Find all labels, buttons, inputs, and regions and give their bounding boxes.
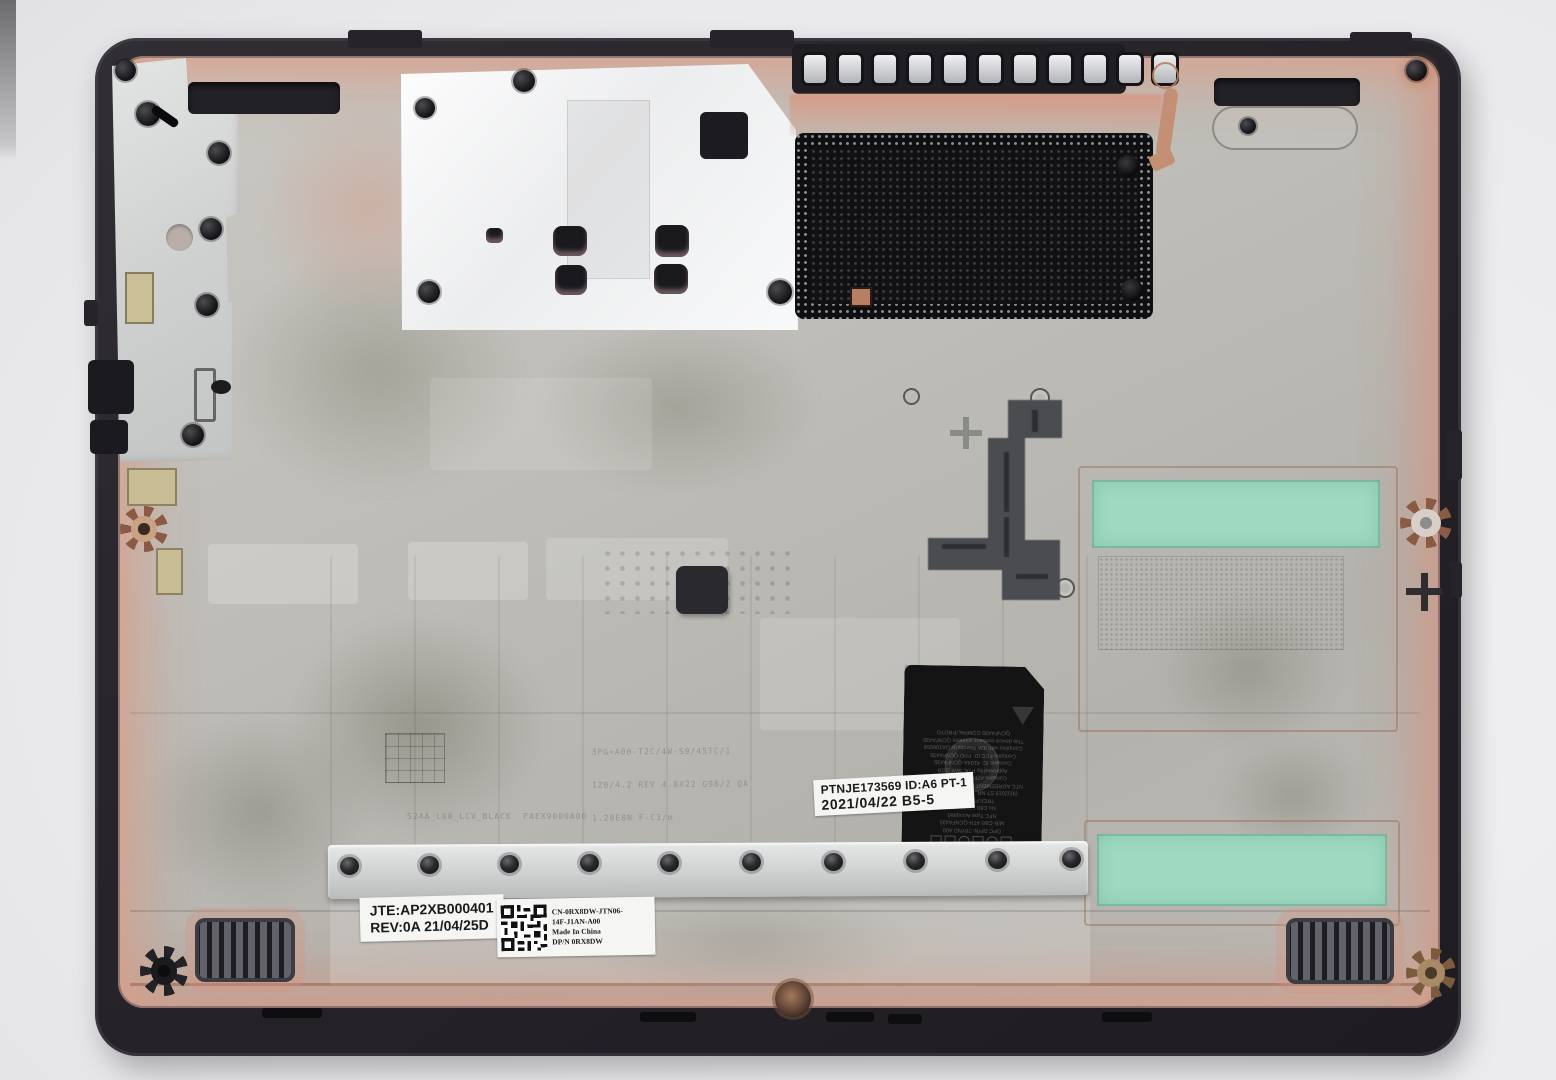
screw-ring <box>903 388 920 405</box>
vent-slot <box>1081 52 1109 86</box>
thermal-pad-bottom <box>1097 834 1387 906</box>
bracket-screw <box>182 424 204 446</box>
strip-screw <box>580 854 599 872</box>
gear-foot-bottom-right <box>1406 948 1456 998</box>
foil-cutout <box>655 225 689 257</box>
foil-screw <box>513 70 535 92</box>
vent-slot <box>1046 52 1074 86</box>
regulatory-triangle-icon <box>1012 707 1034 725</box>
foil-screw <box>418 281 440 303</box>
bottom-metal-strip <box>328 841 1088 899</box>
regulatory-label: DPC DP/N: 78YND A00 M/B-CBB ATH-QCNFA435… <box>901 665 1044 853</box>
strip-screw <box>1062 850 1081 868</box>
foil-screw <box>768 280 792 304</box>
bracket-screw <box>208 142 230 164</box>
tape-residue <box>430 378 652 470</box>
foil-small-hole <box>486 228 503 243</box>
gear-foot-left-mid <box>120 506 168 552</box>
side-tab-left <box>84 300 98 326</box>
foam-z-bracket <box>920 392 1070 607</box>
manufacture-line2: REV:0A 21/04/25D <box>370 916 494 936</box>
hinge-tab-left <box>348 30 422 48</box>
side-port <box>90 420 128 454</box>
strip-screw <box>500 855 519 873</box>
copper-band-under-vents <box>790 94 1162 136</box>
rim-notch <box>262 1008 322 1018</box>
photo-stage: 3PG+A00-T2C/4W-S9/45TC/1 120/4.2 REV 4.8… <box>0 0 1556 1080</box>
hinge-tab-center <box>710 30 794 48</box>
foil-cutout <box>555 265 587 295</box>
foil-black-square <box>700 112 748 159</box>
part-number-line4: DP/N 0RX8DW <box>552 936 623 947</box>
gear-foot-right-mid <box>1400 498 1452 548</box>
rim-notch <box>888 1014 922 1024</box>
rubber-stopper-block <box>676 566 728 614</box>
bracket-oval-hole <box>211 380 231 394</box>
rim-notch <box>826 1012 874 1022</box>
mesh-copper-square <box>850 287 872 307</box>
backdrop-corner-shadow <box>0 0 16 160</box>
speckled-region <box>1098 556 1344 650</box>
plus-mold-mark-dark <box>1421 573 1428 611</box>
vent-slot <box>871 52 899 86</box>
obround-screw-hole <box>1240 118 1256 134</box>
side-tab-right-2 <box>1450 562 1462 598</box>
gear-hole <box>1420 517 1432 529</box>
vent-slot <box>1116 52 1144 86</box>
strip-screw <box>906 852 925 870</box>
vent-slot <box>801 52 829 86</box>
mesh-screw-bump <box>1121 279 1143 301</box>
corner-screw-top-left <box>115 60 136 81</box>
thermal-pad-top <box>1092 480 1380 548</box>
gear-hole <box>1425 967 1437 979</box>
speaker-grille-right <box>1286 918 1394 984</box>
speaker-grille-left <box>195 918 295 982</box>
center-screw-boss <box>775 981 811 1017</box>
strip-screw <box>988 851 1007 869</box>
bracket-screw <box>200 218 222 240</box>
strip-screw <box>420 856 439 874</box>
corner-screw-top-right <box>1406 60 1427 81</box>
hinge-recess-right <box>1214 78 1360 106</box>
etched-grid-table <box>385 733 445 783</box>
etched-line: S24A_L00_LCV_BLACK FAEX9000A00 <box>407 810 587 823</box>
foil-cutout <box>654 264 688 294</box>
gold-contact-pad <box>125 272 154 324</box>
manufacture-label: JTE:AP2XB000401 REV:0A 21/04/25D <box>359 894 504 942</box>
perforated-mesh-grille <box>795 133 1153 319</box>
qr-code <box>501 905 548 952</box>
vent-slot <box>906 52 934 86</box>
part-number-label: CN-0RX8DW-JTN06- 14F-J1AN-A00 Made In Ch… <box>497 897 656 958</box>
foil-screw <box>415 98 435 118</box>
vent-slot <box>941 52 969 86</box>
side-tab-right-1 <box>1446 430 1462 480</box>
vent-slot <box>836 52 864 86</box>
foil-cutout <box>553 226 587 256</box>
top-vent-band <box>792 44 1126 94</box>
strip-screw <box>742 853 761 871</box>
hinge-tab-right <box>1350 32 1412 48</box>
vent-slot <box>976 52 1004 86</box>
part-number-line1: CN-0RX8DW-JTN06- <box>552 906 623 917</box>
obround-outline <box>1212 106 1358 150</box>
latch-screw-hole <box>1152 62 1179 89</box>
rim-notch <box>640 1012 696 1022</box>
bracket-screw <box>196 294 218 316</box>
gear-foot-bottom-left <box>140 946 188 996</box>
etched-line: 3PG+A00-T2C/4W-S9/45TC/1 <box>592 745 749 757</box>
bracket-slot <box>194 368 216 422</box>
hinge-recess-left <box>188 82 340 114</box>
gear-hole <box>138 523 150 534</box>
audio-jack-port <box>88 360 134 414</box>
etched-line: 1.28E0N F-C3/m <box>592 811 749 823</box>
bracket-hole <box>166 224 193 251</box>
strip-screw <box>340 857 359 875</box>
gear-hole <box>158 965 170 977</box>
etched-line: 120/4.2 REV 4.8X22 G98/2 QA <box>592 778 749 790</box>
vent-slot <box>1011 52 1039 86</box>
gold-contact-pad <box>156 548 183 595</box>
rim-notch <box>1102 1012 1152 1022</box>
mesh-screw-bump <box>1117 155 1139 177</box>
strip-screw <box>660 854 679 872</box>
strip-screw <box>824 853 843 871</box>
mesh-core <box>810 148 1138 304</box>
gold-contact-pad <box>127 468 177 506</box>
